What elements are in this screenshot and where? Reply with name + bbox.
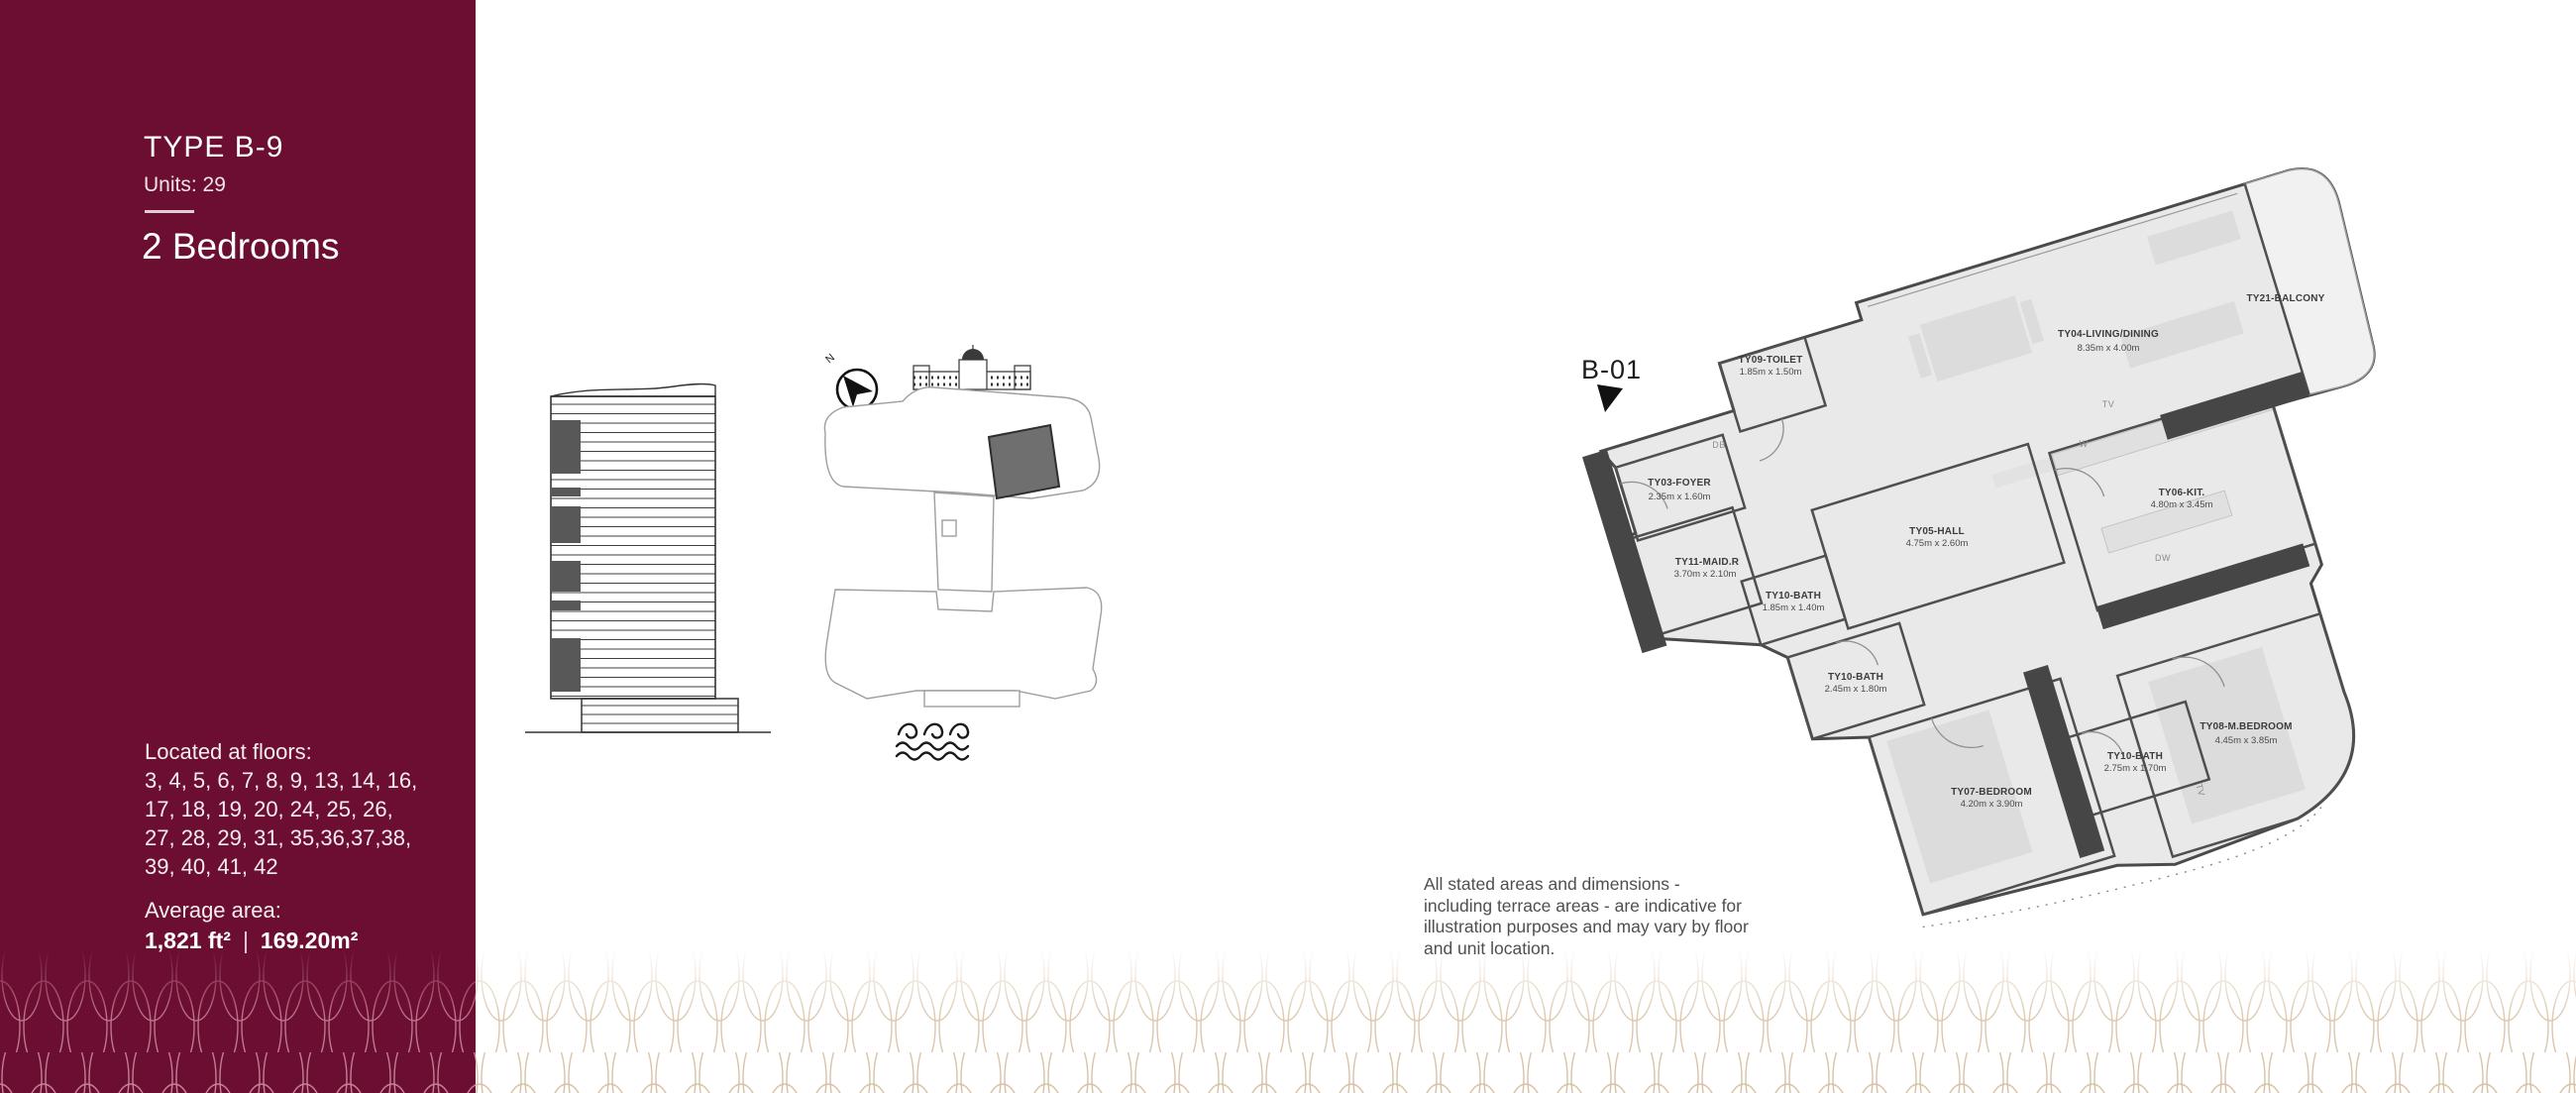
room-label: TY09-TOILET	[1739, 355, 1803, 366]
svg-text:N: N	[823, 352, 837, 366]
room-label: TY10-BATH	[1766, 591, 1821, 601]
room-label: TY10-BATH	[1828, 672, 1883, 683]
page: TYPE B-9 Units: 29 2 Bedrooms Located at…	[0, 0, 2576, 1093]
sea-waves-icon	[897, 724, 968, 760]
room-label: TY05-HALL	[1909, 526, 1965, 537]
floor-plan: B-01 TY03-FOYER 2.35m x 1.60m TY09-TOILE…	[1536, 129, 2427, 1001]
room-dims: 1.85m x 1.50m	[1740, 367, 1802, 378]
unit-entry-label: B-01	[1581, 355, 1642, 384]
sidebar-panel: TYPE B-9 Units: 29 2 Bedrooms Located at…	[0, 0, 476, 1093]
unit-type-title: TYPE B-9	[144, 131, 283, 164]
db-label: DB	[1712, 440, 1726, 450]
room-dims: 4.80m x 3.45m	[2151, 499, 2213, 510]
pattern-maroon	[0, 949, 476, 1093]
disclaimer-line: All stated areas and dimensions -	[1424, 874, 1800, 896]
keyplan-floorplate	[824, 387, 1101, 707]
disclaimer-text: All stated areas and dimensions - includ…	[1424, 874, 1800, 959]
floors-list: Located at floors: 3, 4, 5, 6, 7, 8, 9, …	[145, 737, 442, 881]
room-label: TY11-MAID.R	[1675, 557, 1740, 568]
room-label: TY06-KIT.	[2159, 488, 2205, 498]
entry-arrow-icon	[1597, 384, 1623, 412]
bedrooms-title: 2 Bedrooms	[142, 226, 340, 268]
unit-highlight	[989, 425, 1059, 498]
tower-elevation-icon	[515, 377, 783, 743]
room-dims: 3.70m x 2.10m	[1674, 569, 1737, 580]
room-dims: 2.45m x 1.80m	[1825, 684, 1887, 695]
floors-line: 27, 28, 29, 31, 35,36,37,38,	[145, 823, 442, 852]
room-label: TY07-BEDROOM	[1951, 787, 2032, 798]
room-label: TY21-BALCONY	[2246, 293, 2324, 304]
washer-label: W	[2080, 439, 2089, 449]
average-area-label: Average area:	[145, 898, 281, 924]
floors-line: 39, 40, 41, 42	[145, 852, 442, 881]
units-count: Units: 29	[144, 173, 226, 197]
pattern-white	[476, 949, 2576, 1093]
room-dims: 4.20m x 3.90m	[1961, 799, 2023, 810]
tower-podium	[582, 699, 738, 732]
tv-label: TV	[2102, 399, 2115, 409]
room-dims: 4.75m x 2.60m	[1906, 538, 1969, 549]
room-dims: 2.75m x 1.70m	[2104, 763, 2167, 774]
key-plan: N	[807, 342, 1115, 768]
palace-icon	[913, 345, 1030, 389]
room-label: TY10-BATH	[2107, 751, 2163, 762]
title-underline	[145, 210, 194, 213]
floors-label: Located at floors:	[145, 737, 442, 766]
room-label: TY08-M.BEDROOM	[2200, 721, 2292, 732]
tower-roof	[551, 384, 715, 396]
room-label: TY03-FOYER	[1648, 478, 1711, 489]
room-dims: 2.35m x 1.60m	[1649, 492, 1711, 502]
room-dims: 8.35m x 4.00m	[2078, 343, 2140, 354]
disclaimer-line: illustration purposes and may vary by fl…	[1424, 917, 1800, 938]
deco-pattern-strip	[0, 949, 2576, 1093]
floors-line: 17, 18, 19, 20, 24, 25, 26,	[145, 795, 442, 823]
floors-line: 3, 4, 5, 6, 7, 8, 9, 13, 14, 16,	[145, 766, 442, 795]
north-compass-icon: N	[823, 352, 877, 409]
dishwasher-label: DW	[2155, 553, 2171, 563]
room-dims: 1.85m x 1.40m	[1763, 602, 1825, 613]
room-label: TY04-LIVING/DINING	[2058, 329, 2159, 340]
room-dims: 4.45m x 3.85m	[2215, 735, 2278, 746]
disclaimer-line: including terrace areas - are indicative…	[1424, 896, 1800, 918]
